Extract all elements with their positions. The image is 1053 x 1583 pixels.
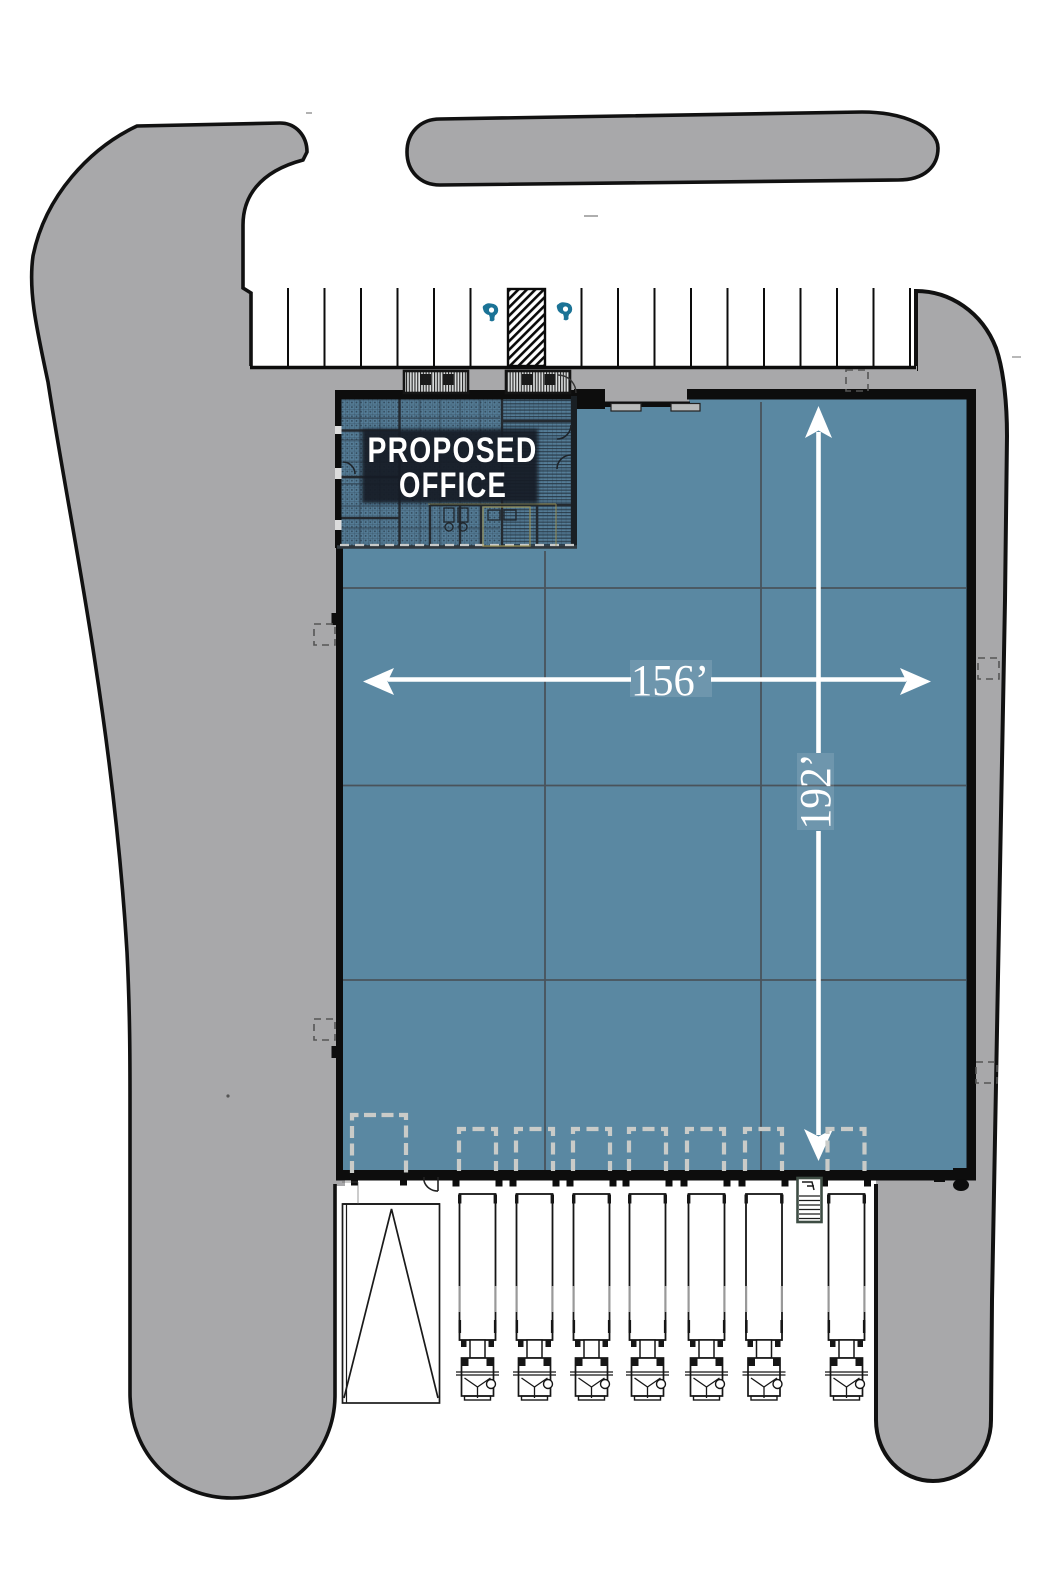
svg-text:PROPOSED: PROPOSED [368, 431, 538, 470]
svg-text:OFFICE: OFFICE [399, 466, 507, 505]
svg-text:156’: 156’ [631, 656, 709, 705]
svg-text:192’: 192’ [791, 754, 840, 830]
